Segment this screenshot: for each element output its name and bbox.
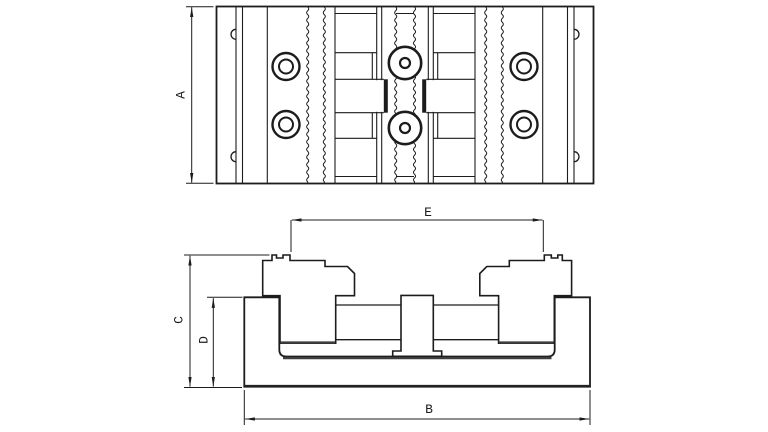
- serration-lines: [307, 7, 504, 183]
- technical-drawing: A E C: [0, 0, 768, 432]
- hole-icon: [231, 29, 236, 39]
- top-view: [217, 7, 594, 184]
- dimension-e-label: E: [424, 205, 432, 220]
- right-clamp-bar: [422, 79, 426, 112]
- dimension-a-label: A: [173, 91, 188, 99]
- top-view-body-outline: [217, 7, 594, 184]
- left-clamp-bar: [384, 79, 388, 112]
- dimension-b: B: [244, 390, 590, 425]
- dimension-d-label: D: [196, 336, 211, 344]
- hole-icon: [574, 29, 579, 39]
- dimension-b-label: B: [425, 402, 433, 417]
- hole-icon: [574, 152, 579, 162]
- dimension-d: D: [196, 297, 242, 386]
- spindle-bosses: [389, 47, 421, 144]
- top-view-plate-lines: [236, 7, 574, 184]
- boss-icon: [389, 112, 421, 144]
- dimension-e: E: [291, 205, 543, 252]
- screw-icon: [511, 53, 538, 80]
- dimension-c-label: C: [171, 316, 186, 324]
- front-view: [244, 255, 590, 387]
- hole-icon: [231, 152, 236, 162]
- screw-icon: [273, 111, 300, 138]
- clamp-bars: [384, 79, 426, 112]
- center-strip-lines: [396, 14, 414, 177]
- screw-icon: [511, 111, 538, 138]
- vise-drawing-canvas: A E C: [0, 0, 768, 432]
- boss-icon: [389, 47, 421, 79]
- dimension-a: A: [173, 7, 213, 184]
- screw-icon: [273, 53, 300, 80]
